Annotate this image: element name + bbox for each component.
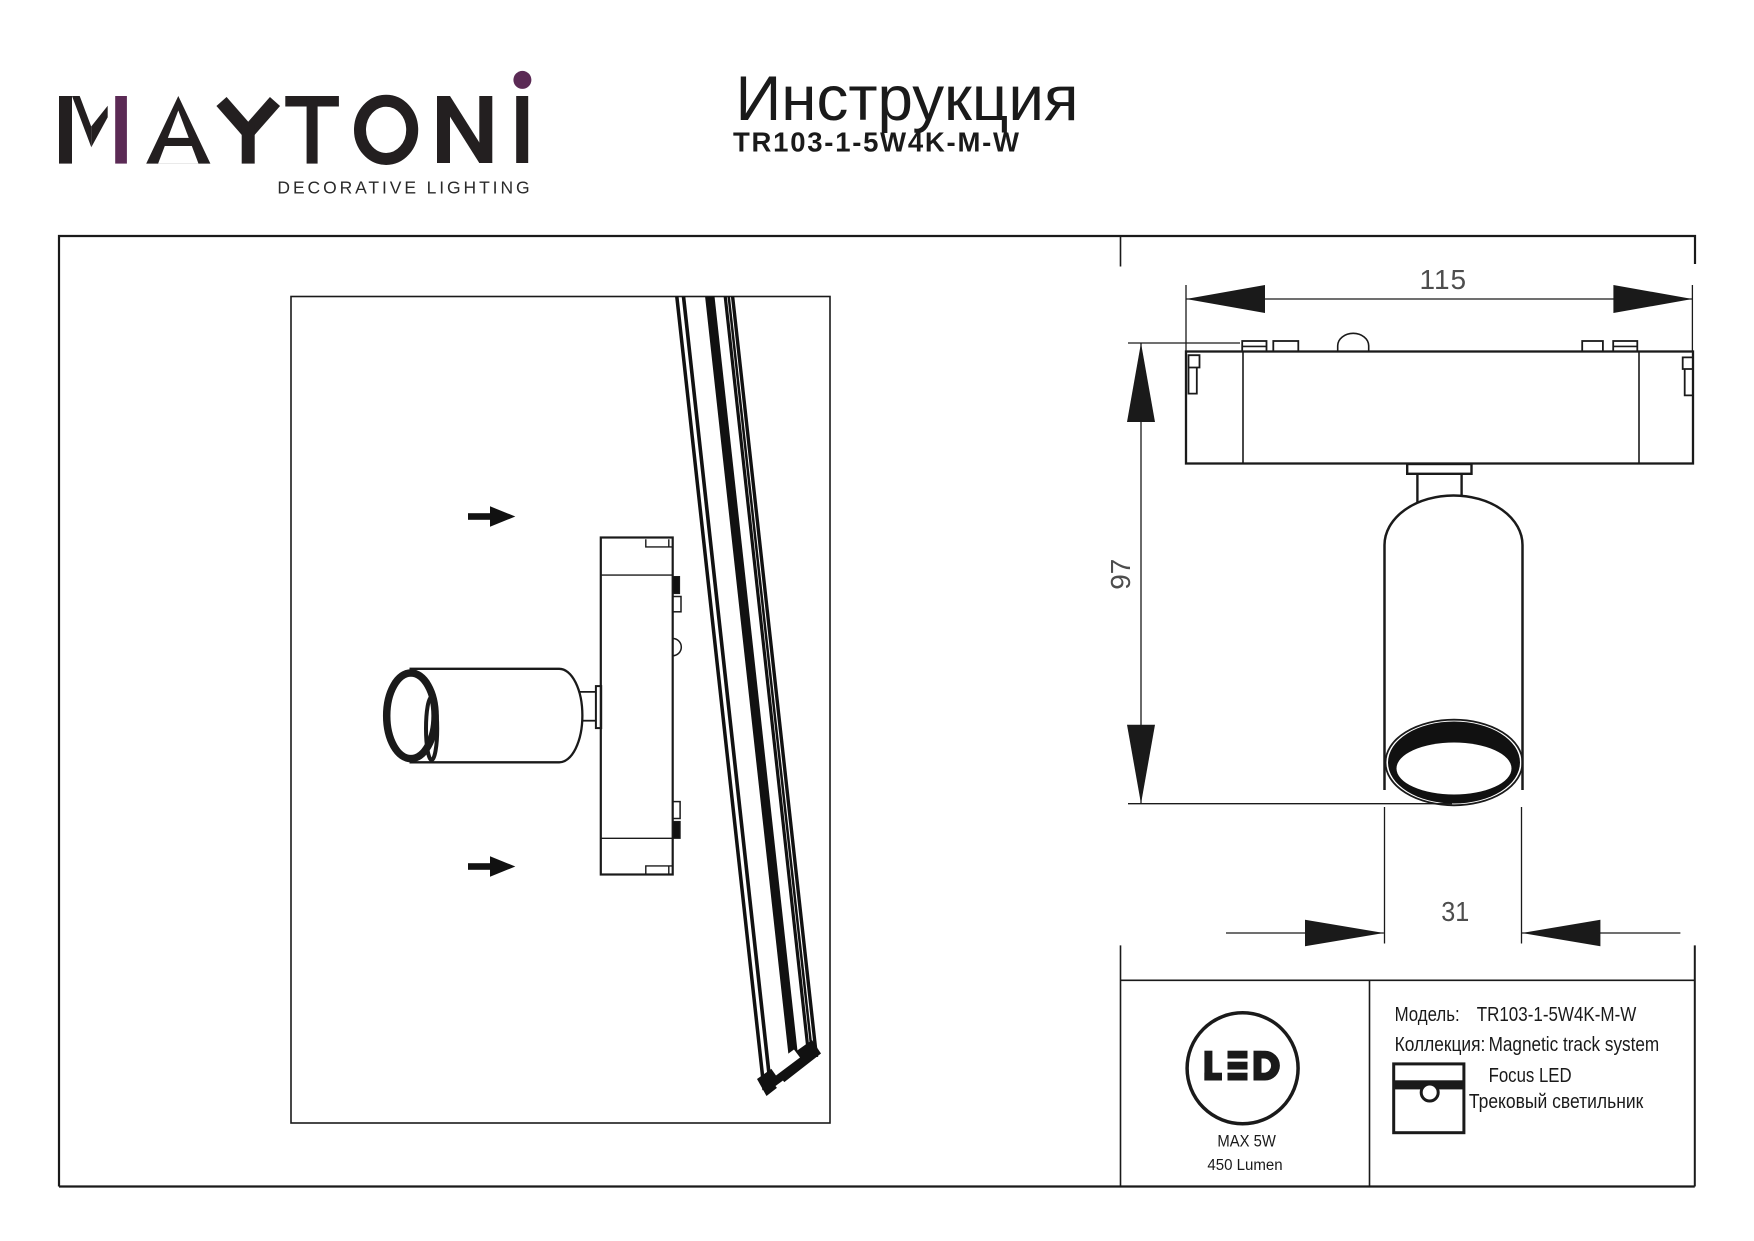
svg-text:Focus LED: Focus LED <box>1489 1065 1572 1087</box>
svg-text:TR103-1-5W4K-M-W: TR103-1-5W4K-M-W <box>1477 1004 1637 1026</box>
svg-text:MAX 5W: MAX 5W <box>1217 1133 1276 1151</box>
svg-text:97: 97 <box>1105 559 1136 590</box>
svg-text:Модель:: Модель: <box>1395 1004 1460 1026</box>
svg-text:450 Lumen: 450 Lumen <box>1207 1157 1282 1174</box>
svg-text:Трековый светильник: Трековый светильник <box>1469 1091 1644 1113</box>
svg-text:Magnetic track system: Magnetic track system <box>1489 1034 1660 1056</box>
svg-text:DECORATIVE LIGHTING: DECORATIVE LIGHTING <box>277 177 532 197</box>
svg-text:Инструкция: Инструкция <box>736 64 1079 134</box>
svg-text:Коллекция:: Коллекция: <box>1395 1034 1486 1056</box>
svg-text:115: 115 <box>1420 264 1467 295</box>
svg-text:TR103-1-5W4K-M-W: TR103-1-5W4K-M-W <box>733 127 1019 158</box>
svg-text:31: 31 <box>1441 896 1469 927</box>
